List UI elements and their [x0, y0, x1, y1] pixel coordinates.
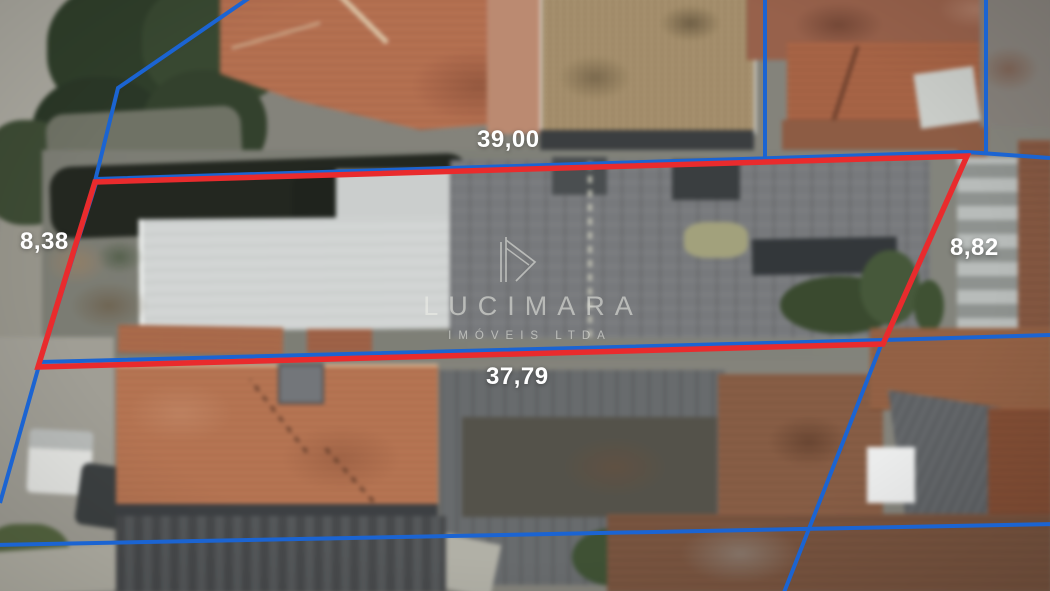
measurement-top: 39,00	[477, 126, 540, 154]
measurement-left: 8,38	[20, 228, 69, 256]
boundary-lines-overlay	[0, 0, 1050, 591]
aerial-property-photo: LUCIMARA IMÓVEIS LTDA 39,00 8,38 8,82 37…	[0, 0, 1050, 591]
measurement-right: 8,82	[950, 234, 999, 262]
measurement-bottom: 37,79	[486, 363, 549, 391]
cadastral-boundary-blue	[0, 0, 1050, 591]
lot-outline-red	[38, 156, 967, 367]
